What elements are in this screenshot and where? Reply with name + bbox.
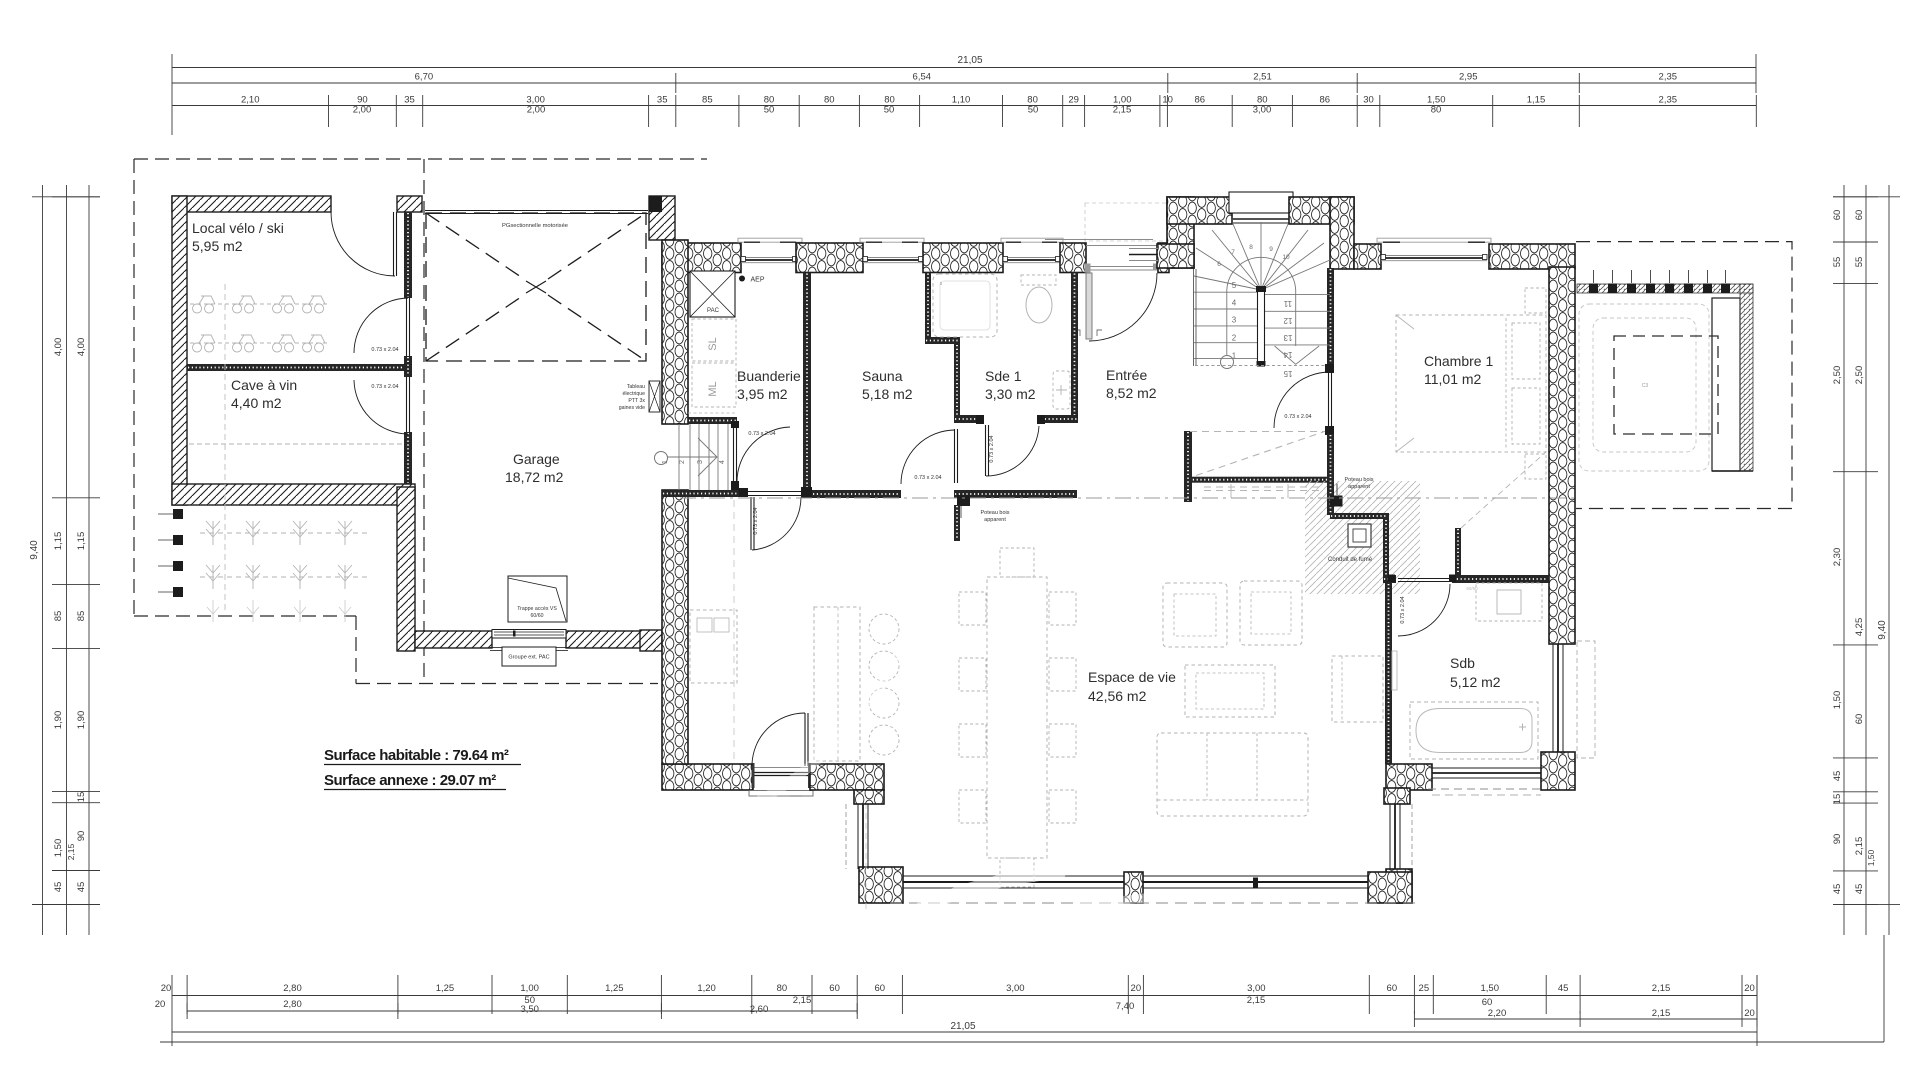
svg-text:Buanderie: Buanderie bbox=[737, 368, 801, 384]
svg-text:15: 15 bbox=[1832, 794, 1843, 805]
svg-text:Poteau bois: Poteau bois bbox=[1344, 477, 1373, 483]
svg-text:Surface annexe : 29.07 m²: Surface annexe : 29.07 m² bbox=[324, 772, 496, 789]
svg-text:12: 12 bbox=[1283, 316, 1292, 325]
svg-text:55: 55 bbox=[1854, 257, 1865, 268]
svg-text:6,70: 6,70 bbox=[415, 72, 434, 83]
svg-text:3,00: 3,00 bbox=[1253, 105, 1272, 116]
svg-text:Surface habitable : 79.64 m²: Surface habitable : 79.64 m² bbox=[324, 747, 509, 764]
svg-text:Sde 1: Sde 1 bbox=[985, 368, 1022, 384]
svg-text:4,00: 4,00 bbox=[53, 338, 64, 357]
svg-text:0.73 x 2.04: 0.73 x 2.04 bbox=[914, 475, 941, 481]
svg-text:50: 50 bbox=[764, 105, 775, 116]
svg-text:5,95 m2: 5,95 m2 bbox=[192, 238, 243, 254]
svg-text:21,05: 21,05 bbox=[957, 55, 982, 66]
svg-text:4: 4 bbox=[719, 460, 726, 464]
svg-text:0.73 x 2.04: 0.73 x 2.04 bbox=[989, 435, 995, 462]
svg-text:0.73 x 2.04: 0.73 x 2.04 bbox=[371, 347, 398, 353]
svg-text:2,15: 2,15 bbox=[1652, 983, 1671, 994]
svg-text:45: 45 bbox=[53, 882, 64, 893]
svg-text:60: 60 bbox=[875, 983, 886, 994]
svg-text:2,15: 2,15 bbox=[66, 843, 76, 860]
svg-text:15: 15 bbox=[76, 792, 87, 803]
svg-text:2,15: 2,15 bbox=[1652, 1008, 1671, 1019]
svg-text:60: 60 bbox=[1832, 210, 1843, 221]
svg-text:50: 50 bbox=[1028, 105, 1039, 116]
svg-text:2,30: 2,30 bbox=[1832, 548, 1843, 567]
svg-text:3,00: 3,00 bbox=[1247, 983, 1266, 994]
svg-text:13: 13 bbox=[1283, 333, 1292, 342]
svg-text:55: 55 bbox=[1832, 257, 1843, 268]
svg-text:1,20: 1,20 bbox=[697, 983, 716, 994]
svg-text:Trappe accès VS: Trappe accès VS bbox=[517, 606, 557, 612]
svg-text:Tableau: Tableau bbox=[627, 384, 645, 390]
svg-text:1,15: 1,15 bbox=[76, 532, 87, 551]
svg-text:60: 60 bbox=[829, 983, 840, 994]
svg-text:AEP: AEP bbox=[751, 277, 765, 284]
svg-text:Conduit de fumé: Conduit de fumé bbox=[1328, 557, 1373, 563]
svg-text:85: 85 bbox=[53, 611, 64, 622]
svg-text:20: 20 bbox=[161, 983, 172, 994]
svg-text:2,35: 2,35 bbox=[1659, 95, 1678, 106]
svg-text:3: 3 bbox=[1232, 316, 1237, 325]
svg-text:PTT 3x: PTT 3x bbox=[628, 398, 645, 404]
svg-text:Entrée: Entrée bbox=[1106, 367, 1147, 383]
svg-text:1,90: 1,90 bbox=[76, 711, 87, 730]
svg-text:3,50: 3,50 bbox=[520, 1004, 539, 1015]
svg-text:60: 60 bbox=[1482, 997, 1493, 1008]
svg-text:1,15: 1,15 bbox=[53, 532, 64, 551]
svg-text:1,90: 1,90 bbox=[53, 711, 64, 730]
svg-text:1,50: 1,50 bbox=[53, 839, 64, 858]
svg-text:2,60: 2,60 bbox=[750, 1004, 769, 1015]
svg-text:Cave à vin: Cave à vin bbox=[231, 377, 297, 393]
svg-text:4,40 m2: 4,40 m2 bbox=[231, 395, 282, 411]
svg-text:1,15: 1,15 bbox=[1527, 95, 1546, 106]
svg-text:60/60: 60/60 bbox=[1466, 586, 1478, 591]
svg-text:2,15: 2,15 bbox=[793, 995, 812, 1006]
svg-text:1,25: 1,25 bbox=[436, 983, 455, 994]
svg-text:4,25: 4,25 bbox=[1854, 618, 1865, 637]
svg-text:35: 35 bbox=[657, 95, 668, 106]
svg-text:0.73 x 2.04: 0.73 x 2.04 bbox=[1400, 596, 1406, 623]
svg-text:14: 14 bbox=[1283, 350, 1292, 359]
svg-text:20: 20 bbox=[1744, 1008, 1755, 1019]
svg-text:80: 80 bbox=[824, 95, 835, 106]
svg-text:9,40: 9,40 bbox=[1877, 620, 1888, 640]
svg-text:1: 1 bbox=[662, 460, 669, 464]
svg-text:45: 45 bbox=[1832, 884, 1843, 895]
svg-text:2,00: 2,00 bbox=[353, 105, 372, 116]
svg-text:PGsectionnelle motorisée: PGsectionnelle motorisée bbox=[502, 223, 568, 229]
svg-text:6,54: 6,54 bbox=[913, 72, 932, 83]
svg-text:86: 86 bbox=[1320, 95, 1331, 106]
svg-text:50: 50 bbox=[884, 105, 895, 116]
svg-text:0.73 x 2.04: 0.73 x 2.04 bbox=[748, 431, 775, 437]
svg-text:Espace de vie: Espace de vie bbox=[1088, 669, 1176, 685]
svg-text:15: 15 bbox=[1283, 369, 1292, 378]
svg-text:42,56 m2: 42,56 m2 bbox=[1088, 688, 1147, 704]
svg-text:45: 45 bbox=[1558, 983, 1569, 994]
svg-text:45: 45 bbox=[76, 882, 87, 893]
svg-text:11: 11 bbox=[1283, 299, 1292, 308]
svg-text:2,95: 2,95 bbox=[1459, 72, 1478, 83]
svg-text:85: 85 bbox=[702, 95, 713, 106]
svg-text:9,40: 9,40 bbox=[29, 540, 40, 560]
svg-text:80: 80 bbox=[777, 983, 788, 994]
svg-text:Sauna: Sauna bbox=[862, 368, 903, 384]
svg-text:3: 3 bbox=[697, 460, 704, 464]
svg-text:20: 20 bbox=[1744, 983, 1755, 994]
svg-text:3,00: 3,00 bbox=[1006, 983, 1025, 994]
svg-text:5,18 m2: 5,18 m2 bbox=[862, 386, 913, 402]
svg-text:2: 2 bbox=[1232, 334, 1237, 343]
svg-text:29: 29 bbox=[1068, 95, 1079, 106]
svg-text:1,50: 1,50 bbox=[1832, 691, 1843, 710]
svg-text:2,50: 2,50 bbox=[1832, 366, 1843, 385]
svg-text:C3: C3 bbox=[1642, 383, 1649, 389]
svg-text:Groupe ext. PAC: Groupe ext. PAC bbox=[508, 655, 549, 661]
svg-text:1,10: 1,10 bbox=[952, 95, 971, 106]
svg-text:0.73 x 2.04: 0.73 x 2.04 bbox=[371, 384, 398, 390]
svg-text:18,72 m2: 18,72 m2 bbox=[505, 469, 564, 485]
svg-text:90: 90 bbox=[1832, 834, 1843, 845]
svg-text:ML: ML bbox=[707, 381, 719, 396]
svg-text:4: 4 bbox=[1232, 299, 1237, 308]
svg-text:10: 10 bbox=[1282, 254, 1290, 261]
svg-text:0.73 x 2.04: 0.73 x 2.04 bbox=[753, 507, 759, 534]
svg-text:20: 20 bbox=[1131, 983, 1142, 994]
svg-text:7,40: 7,40 bbox=[1116, 1001, 1135, 1012]
svg-text:Local vélo / ski: Local vélo / ski bbox=[192, 220, 284, 236]
svg-text:80: 80 bbox=[1431, 105, 1442, 116]
svg-text:2,20: 2,20 bbox=[1488, 1008, 1507, 1019]
svg-text:2,15: 2,15 bbox=[1854, 837, 1865, 856]
svg-text:2,15: 2,15 bbox=[1247, 995, 1266, 1006]
svg-text:2,00: 2,00 bbox=[527, 105, 546, 116]
svg-text:1,50: 1,50 bbox=[1481, 983, 1500, 994]
svg-text:2,15: 2,15 bbox=[1113, 105, 1132, 116]
svg-text:2,51: 2,51 bbox=[1253, 72, 1272, 83]
svg-text:apparent: apparent bbox=[984, 517, 1006, 523]
svg-text:60: 60 bbox=[1854, 210, 1865, 221]
svg-text:Garage: Garage bbox=[513, 451, 560, 467]
svg-text:9: 9 bbox=[1269, 246, 1273, 253]
svg-text:PAC: PAC bbox=[707, 308, 720, 314]
svg-text:Chambre 1: Chambre 1 bbox=[1424, 353, 1493, 369]
svg-text:60/60: 60/60 bbox=[531, 613, 544, 619]
svg-text:1,00: 1,00 bbox=[520, 983, 539, 994]
svg-text:2,80: 2,80 bbox=[283, 983, 302, 994]
svg-text:2,35: 2,35 bbox=[1659, 72, 1678, 83]
svg-text:3,30 m2: 3,30 m2 bbox=[985, 386, 1036, 402]
svg-text:45: 45 bbox=[1832, 771, 1843, 782]
svg-text:1,50: 1,50 bbox=[1866, 849, 1876, 866]
svg-text:60: 60 bbox=[1387, 983, 1398, 994]
svg-text:35: 35 bbox=[404, 95, 415, 106]
svg-text:90: 90 bbox=[76, 831, 87, 842]
svg-text:1: 1 bbox=[1232, 352, 1237, 361]
svg-text:SL: SL bbox=[707, 337, 719, 350]
svg-text:6: 6 bbox=[1217, 261, 1221, 268]
svg-text:5: 5 bbox=[1232, 281, 1237, 290]
svg-text:45: 45 bbox=[1854, 884, 1865, 895]
svg-text:8: 8 bbox=[1249, 244, 1253, 251]
svg-text:apparent: apparent bbox=[1348, 484, 1370, 490]
svg-text:Poteau bois: Poteau bois bbox=[980, 510, 1009, 516]
svg-text:5,12 m2: 5,12 m2 bbox=[1450, 674, 1501, 690]
svg-text:20: 20 bbox=[155, 999, 166, 1010]
svg-text:30: 30 bbox=[1363, 95, 1374, 106]
svg-text:3,95 m2: 3,95 m2 bbox=[737, 386, 788, 402]
svg-text:2,50: 2,50 bbox=[1854, 366, 1865, 385]
svg-text:2: 2 bbox=[679, 460, 686, 464]
svg-text:Sdb: Sdb bbox=[1450, 655, 1475, 671]
svg-text:2,10: 2,10 bbox=[241, 95, 260, 106]
svg-text:4,00: 4,00 bbox=[76, 338, 87, 357]
svg-text:11,01 m2: 11,01 m2 bbox=[1424, 371, 1482, 387]
svg-text:85: 85 bbox=[76, 611, 87, 622]
svg-text:2,80: 2,80 bbox=[283, 999, 302, 1010]
svg-text:86: 86 bbox=[1195, 95, 1206, 106]
svg-text:1,25: 1,25 bbox=[605, 983, 624, 994]
svg-text:60: 60 bbox=[1854, 714, 1865, 725]
svg-text:gaines vide: gaines vide bbox=[619, 405, 645, 411]
svg-text:0.73 x 2.04: 0.73 x 2.04 bbox=[1284, 414, 1311, 420]
svg-text:21,05: 21,05 bbox=[950, 1021, 975, 1032]
svg-text:7: 7 bbox=[1231, 249, 1235, 256]
svg-text:8,52 m2: 8,52 m2 bbox=[1106, 385, 1157, 401]
svg-text:25: 25 bbox=[1419, 983, 1430, 994]
svg-text:électrique: électrique bbox=[623, 391, 646, 397]
